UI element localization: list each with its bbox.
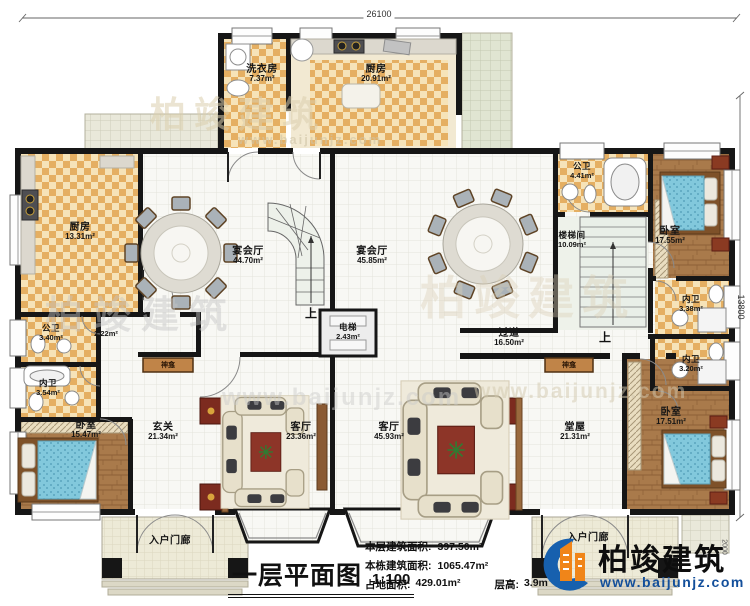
stair-up-label-left: 上 (305, 305, 317, 322)
brand-name: 柏竣建筑 (598, 535, 726, 579)
stat-label: 层高: (494, 577, 519, 592)
stat-value: 1065.47m² (438, 560, 489, 572)
brand-website[interactable]: www.baijunjz.com (600, 574, 745, 590)
shrine-label-left: 神龛 (161, 360, 175, 370)
stat-label: 本栋建筑面积: (365, 558, 432, 573)
straight-stair (580, 217, 646, 327)
brand-logo-icon (538, 531, 596, 597)
bed-left (18, 438, 98, 502)
floor-plan-page: 柏竣建筑 www.baijunjz.com 柏竣建筑 www.baijunjz.… (0, 0, 750, 606)
dimension-height: 13800 (736, 291, 746, 322)
stat-value: 429.01m² (416, 577, 461, 592)
bay-window-left (235, 509, 330, 542)
terrace-top-left (85, 114, 218, 150)
dimension-width: 26100 (363, 9, 394, 19)
floor-plan-drawing (0, 0, 750, 606)
terrace-top-right (462, 33, 512, 150)
brand-block: 柏竣建筑 www.baijunjz.com (538, 527, 748, 602)
porch-left-floor (102, 517, 248, 579)
shrine-label-right: 神龛 (562, 360, 576, 370)
kitchen-left-floor (21, 154, 138, 312)
elevator-shaft (320, 310, 376, 356)
stat-label: 占地面积: (365, 577, 411, 592)
stair-up-label-right: 上 (599, 329, 611, 346)
stat-label: 本层建筑面积: (365, 539, 432, 554)
area-stats: 本层建筑面积: 397.50m² 本栋建筑面积: 1065.47m² 占地面积:… (365, 539, 548, 596)
stat-value: 397.50m² (438, 541, 483, 553)
plan-title: 一层平面图 (232, 556, 362, 592)
laundry-fixtures (226, 44, 250, 96)
